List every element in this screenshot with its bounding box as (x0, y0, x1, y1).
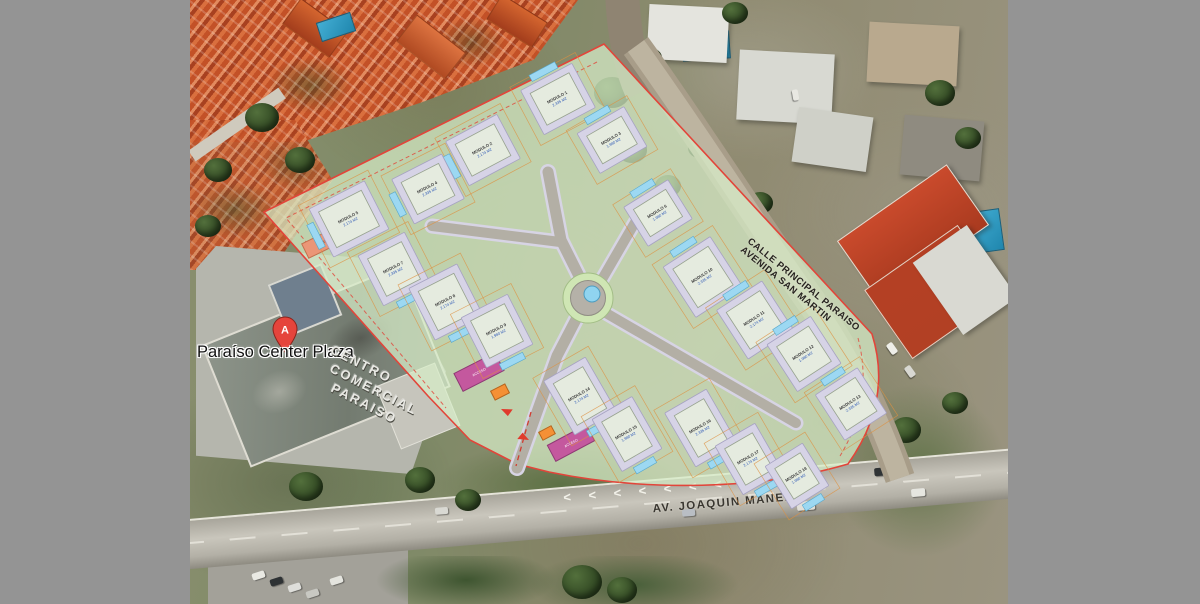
screenshot-stage: < < < < < < < < AV. JOAQUIN MANEIRO (0, 0, 1200, 604)
site-plan-overlay: ESTACIONAMIENTOACCESOACCESO MODULO 12.33… (0, 0, 1200, 604)
fountain (584, 286, 600, 302)
pin-letter: A (281, 325, 289, 337)
roundabout (563, 273, 613, 323)
